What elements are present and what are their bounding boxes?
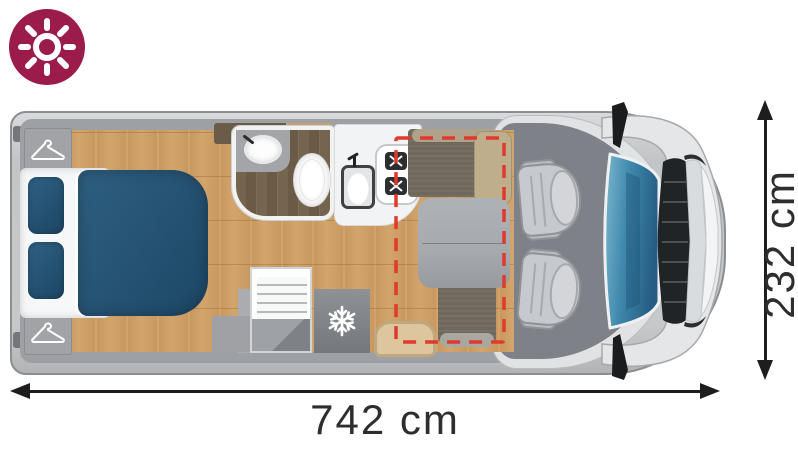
windshield-reflection — [626, 172, 640, 310]
cabinet-louvers — [257, 277, 307, 319]
page: 742 cm 232 cm — [0, 0, 798, 466]
arrow-down-icon — [757, 360, 773, 380]
arrow-up-icon — [757, 100, 773, 120]
passenger-swivel-seat — [515, 155, 588, 242]
grille — [658, 158, 690, 324]
pillow — [28, 242, 64, 299]
louvered-cabinet — [250, 267, 312, 353]
wardrobe-top — [24, 128, 72, 172]
sun-icon — [9, 9, 85, 85]
pillow — [28, 177, 64, 234]
vehicle-front — [600, 98, 728, 384]
sun-badge — [9, 9, 85, 85]
refrigerator — [314, 289, 370, 353]
bed-duvet — [78, 170, 208, 316]
arrow-right-icon — [700, 383, 720, 399]
cabinet-base — [252, 319, 310, 351]
hanger-icon — [30, 139, 66, 161]
snowflake-icon — [325, 304, 359, 338]
length-dimension-label: 742 cm — [255, 396, 515, 444]
hanger-icon — [30, 322, 66, 344]
bathroom — [232, 126, 334, 220]
kitchen-sink — [341, 165, 375, 209]
driver-swivel-seat — [515, 246, 588, 333]
toilet — [294, 154, 330, 206]
motorhome-floorplan — [8, 105, 726, 377]
length-dimension-line — [28, 390, 702, 393]
drop-down-bed-outline — [394, 136, 506, 344]
entry-step — [212, 316, 250, 352]
arrow-left-icon — [10, 383, 30, 399]
